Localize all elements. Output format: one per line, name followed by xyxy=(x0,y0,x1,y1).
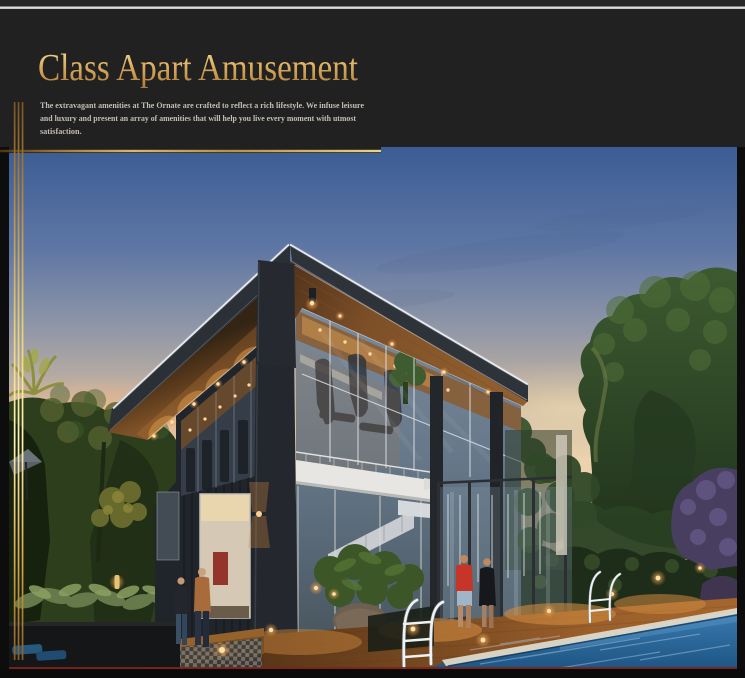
svg-text:and luxury and present an arra: and luxury and present an array of ameni… xyxy=(40,114,356,123)
svg-text:The extravagant amenities at T: The extravagant amenities at The Ornate … xyxy=(40,101,364,110)
svg-text:Class Apart Amusement: Class Apart Amusement xyxy=(38,47,358,89)
svg-text:satisfaction.: satisfaction. xyxy=(40,127,82,136)
